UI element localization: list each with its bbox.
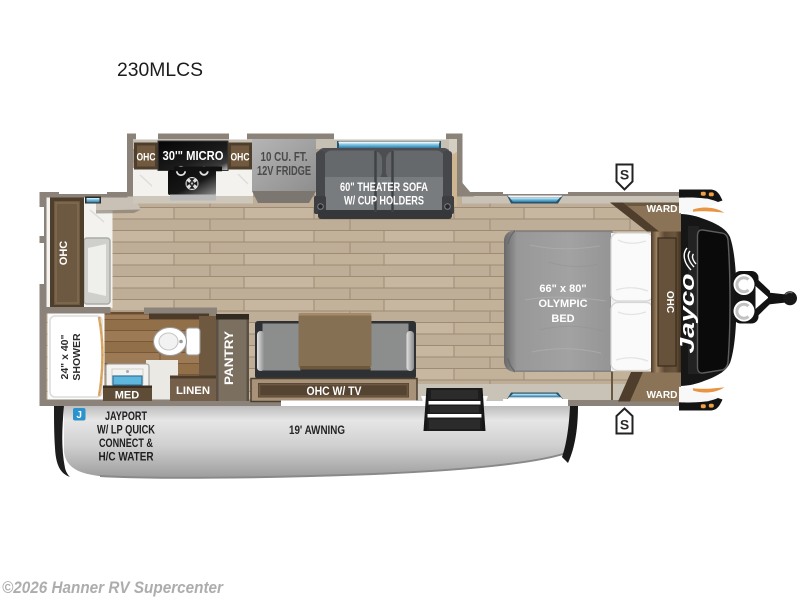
svg-text:WARD: WARD bbox=[647, 203, 678, 215]
svg-text:30'" MICRO: 30'" MICRO bbox=[163, 148, 224, 163]
svg-text:SHOWER: SHOWER bbox=[71, 333, 83, 381]
svg-text:S: S bbox=[620, 167, 629, 183]
svg-text:W/ CUP HOLDERS: W/ CUP HOLDERS bbox=[344, 196, 424, 208]
svg-text:10 CU. FT.: 10 CU. FT. bbox=[261, 150, 308, 164]
svg-text:66" x 80": 66" x 80" bbox=[539, 283, 586, 295]
svg-text:OHC: OHC bbox=[664, 291, 675, 313]
svg-text:OHC: OHC bbox=[137, 152, 156, 164]
svg-text:LINEN: LINEN bbox=[176, 385, 210, 397]
svg-text:OHC W/ TV: OHC W/ TV bbox=[307, 384, 362, 398]
svg-text:OHC: OHC bbox=[58, 241, 70, 266]
svg-text:H/C WATER: H/C WATER bbox=[99, 450, 154, 464]
svg-text:BED: BED bbox=[551, 313, 574, 325]
svg-text:60" THEATER SOFA: 60" THEATER SOFA bbox=[340, 182, 428, 194]
svg-text:24" x 40": 24" x 40" bbox=[59, 334, 71, 379]
svg-text:S: S bbox=[620, 417, 629, 433]
svg-text:©2026 Hanner RV Supercenter: ©2026 Hanner RV Supercenter bbox=[2, 578, 224, 597]
svg-text:OHC: OHC bbox=[231, 152, 250, 164]
svg-text:19' AWNING: 19' AWNING bbox=[289, 423, 345, 437]
svg-text:Jayco: Jayco bbox=[677, 274, 699, 354]
svg-text:WARD: WARD bbox=[647, 389, 678, 401]
svg-text:W/ LP QUICK: W/ LP QUICK bbox=[97, 423, 155, 437]
svg-text:12V FRIDGE: 12V FRIDGE bbox=[257, 164, 311, 178]
svg-text:CONNECT &: CONNECT & bbox=[99, 436, 153, 450]
svg-text:230MLCS: 230MLCS bbox=[117, 59, 203, 81]
svg-text:JAYPORT: JAYPORT bbox=[105, 409, 148, 423]
svg-text:MED: MED bbox=[115, 390, 140, 402]
svg-text:J: J bbox=[76, 410, 82, 421]
svg-text:OLYMPIC: OLYMPIC bbox=[538, 298, 587, 310]
svg-text:PANTRY: PANTRY bbox=[224, 331, 236, 385]
